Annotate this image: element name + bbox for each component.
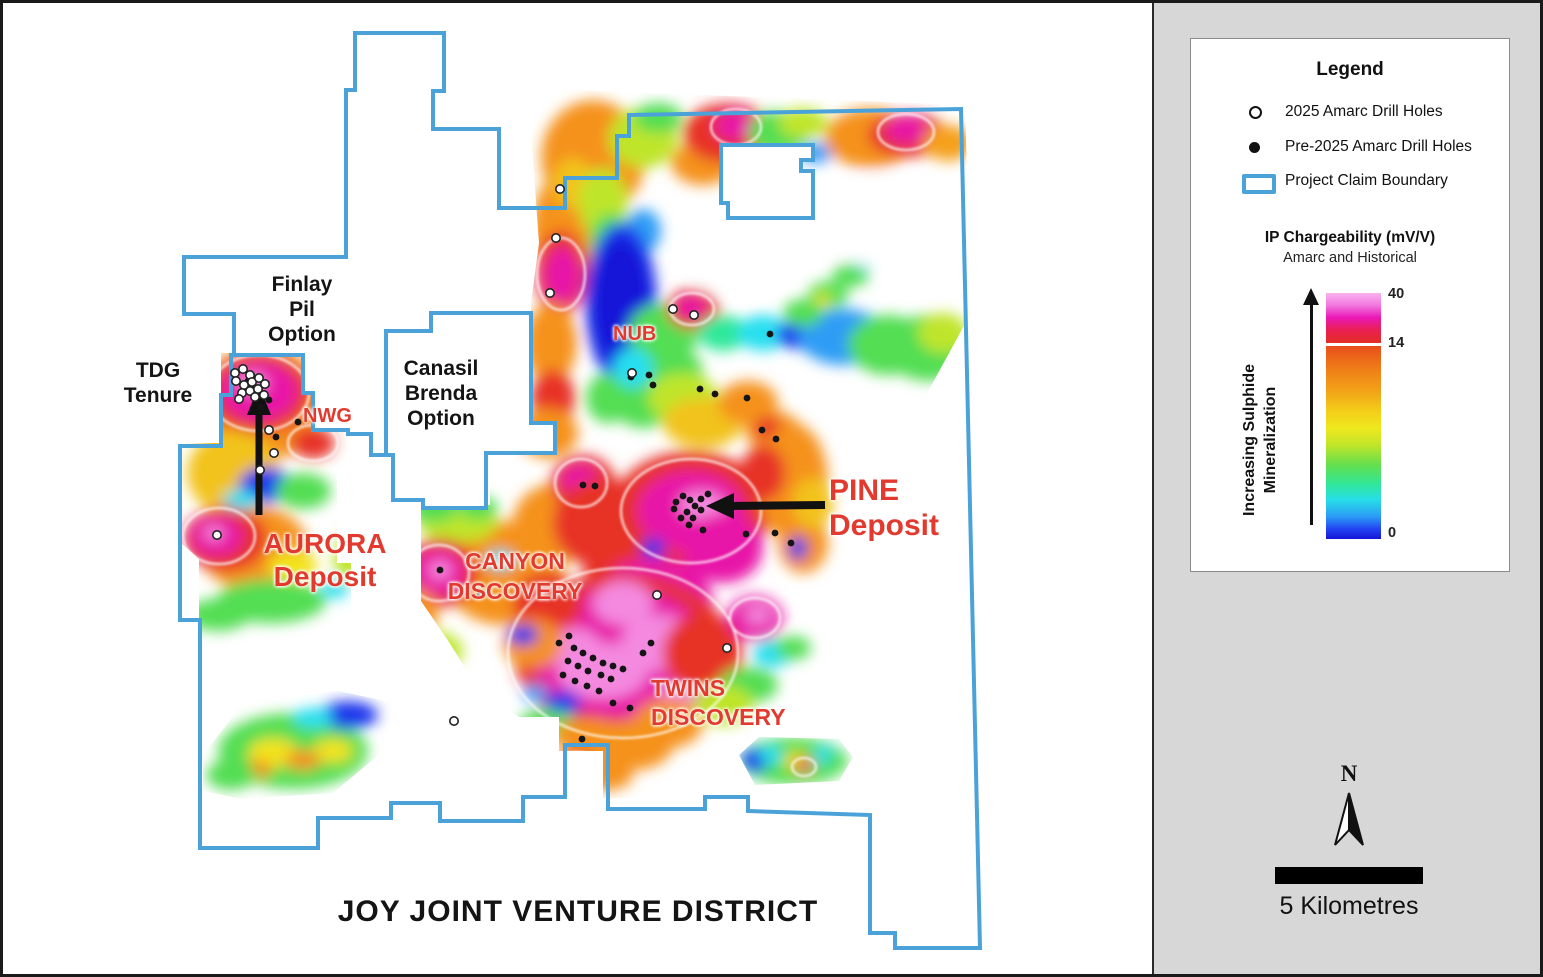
tdg-line-2: Tenure <box>103 383 213 408</box>
area-label-tdg-tenure: TDG Tenure <box>103 358 213 408</box>
increasing-sulphide-label: Increasing Sulphide Mineralization <box>1239 295 1283 585</box>
canyon-line-1: CANYON <box>415 546 615 576</box>
filled-circle-icon <box>1249 142 1260 153</box>
canasil-line-1: Canasil <box>380 356 502 381</box>
ip-chargeability-heatmap <box>183 100 973 791</box>
scale-tick-14: 14 <box>1388 335 1404 351</box>
aurora-line-1: AURORA <box>235 527 415 560</box>
zone-label-canyon-discovery: CANYON DISCOVERY <box>415 546 615 606</box>
legend-item-label: Project Claim Boundary <box>1285 172 1448 190</box>
north-label: N <box>1154 761 1543 787</box>
twins-line-1: TWINS <box>651 674 786 703</box>
legend-title: Legend <box>1191 59 1509 81</box>
pine-line-2: Deposit <box>829 508 939 543</box>
twins-line-2: DISCOVERY <box>651 703 786 732</box>
threshold-line-14 <box>1326 343 1381 346</box>
finlay-line-1: Finlay <box>247 272 357 297</box>
finlay-line-3: Option <box>247 322 357 347</box>
legend-item-label: Pre-2025 Amarc Drill Holes <box>1285 138 1472 156</box>
ip-chargeability-title: IP Chargeability (mV/V) <box>1191 229 1509 247</box>
increasing-arrow-line <box>1310 303 1313 525</box>
chargeability-color-scale <box>1326 293 1381 539</box>
side-panel: Legend 2025 Amarc Drill Holes Pre-2025 A… <box>1152 3 1540 974</box>
tdg-line-1: TDG <box>103 358 213 383</box>
north-arrow-icon <box>1331 791 1367 849</box>
open-circle-icon <box>1249 106 1262 119</box>
legend-item-label: 2025 Amarc Drill Holes <box>1285 103 1443 121</box>
increasing-arrow-head-icon <box>1303 288 1319 305</box>
map-area: Finlay Pil Option TDG Tenure Canasil Bre… <box>3 3 1152 974</box>
pine-line-1: PINE <box>829 473 939 508</box>
legend-box: Legend 2025 Amarc Drill Holes Pre-2025 A… <box>1190 38 1510 572</box>
legend-row-claim-boundary: Project Claim Boundary <box>1191 170 1509 194</box>
aurora-line-2: Deposit <box>235 560 415 593</box>
scale-tick-0: 0 <box>1388 525 1396 541</box>
legend-row-pre-2025-drill-holes: Pre-2025 Amarc Drill Holes <box>1191 136 1509 160</box>
legend-row-2025-drill-holes: 2025 Amarc Drill Holes <box>1191 101 1509 125</box>
canasil-line-2: Brenda <box>380 381 502 406</box>
deposit-label-pine: PINE Deposit <box>829 473 939 543</box>
area-label-finlay-pil-option: Finlay Pil Option <box>247 272 357 347</box>
sulphide-label-line-2: Mineralization <box>1260 295 1281 585</box>
ip-chargeability-subtitle: Amarc and Historical <box>1191 250 1509 266</box>
canasil-line-3: Option <box>380 406 502 431</box>
zone-label-nwg: NWG <box>303 405 352 428</box>
sulphide-label-line-1: Increasing Sulphide <box>1239 295 1260 585</box>
ip-chargeability-map <box>3 3 1152 974</box>
finlay-line-2: Pil <box>247 297 357 322</box>
zone-label-twins-discovery: TWINS DISCOVERY <box>651 674 786 732</box>
scale-bar-label: 5 Kilometres <box>1229 892 1469 921</box>
zone-label-nub: NUB <box>613 323 656 346</box>
claim-boundary-icon <box>1242 174 1276 194</box>
map-title: JOY JOINT VENTURE DISTRICT <box>273 895 883 929</box>
canyon-line-2: DISCOVERY <box>415 576 615 606</box>
scale-bar <box>1275 867 1423 884</box>
figure-frame: Finlay Pil Option TDG Tenure Canasil Bre… <box>0 0 1543 977</box>
scale-tick-40: 40 <box>1388 286 1404 302</box>
area-label-canasil-brenda-option: Canasil Brenda Option <box>380 356 502 431</box>
deposit-label-aurora: AURORA Deposit <box>235 527 415 593</box>
